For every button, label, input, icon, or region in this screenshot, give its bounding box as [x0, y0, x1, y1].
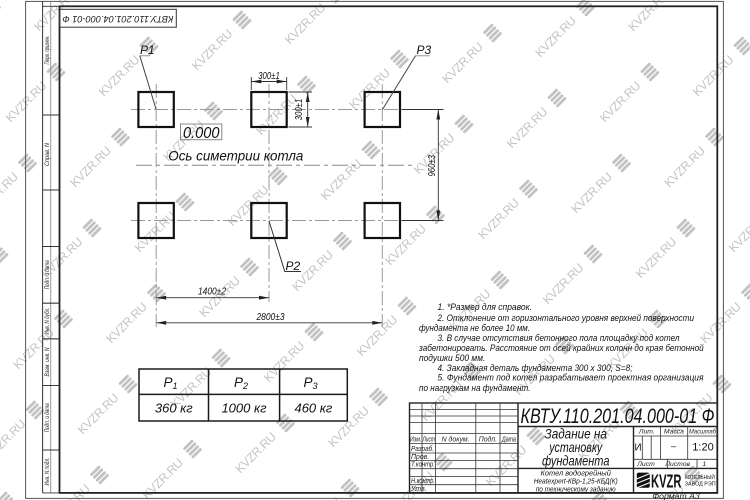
svg-text:Лист: Лист	[422, 437, 435, 444]
svg-text:P3: P3	[417, 43, 432, 57]
svg-text:–: –	[671, 441, 677, 452]
svg-text:Масса: Масса	[664, 429, 684, 436]
svg-text:1. *Размер для справок.: 1. *Размер для справок.	[438, 302, 533, 313]
svg-text:Лист: Лист	[636, 461, 655, 468]
svg-text:0.000: 0.000	[183, 125, 220, 142]
svg-text:Листов: Листов	[664, 461, 690, 468]
svg-text:Т.контр.: Т.контр.	[411, 462, 435, 469]
svg-text:KVZR: KVZR	[651, 471, 682, 492]
svg-text:Ось симетрии котла: Ось симетрии котла	[168, 149, 303, 165]
svg-text:300±1: 300±1	[258, 71, 280, 82]
svg-text:И: И	[634, 442, 641, 453]
svg-text:по техническому заданию: по техническому заданию	[536, 484, 616, 493]
svg-text:960±3: 960±3	[427, 155, 438, 177]
svg-text:P2: P2	[286, 259, 301, 273]
svg-text:1: 1	[702, 461, 706, 468]
svg-text:Утв.: Утв.	[410, 486, 427, 493]
svg-text:1:20: 1:20	[692, 442, 713, 454]
svg-text:300±1: 300±1	[294, 99, 305, 121]
svg-text:по нагрузкам на фундамент.: по нагрузкам на фундамент.	[419, 383, 530, 394]
svg-text:КВТУ.110.201.04.000-01 Ф: КВТУ.110.201.04.000-01 Ф	[62, 13, 173, 24]
svg-text:КОТЕЛЬНЫЙ: КОТЕЛЬНЫЙ	[685, 473, 715, 481]
svg-text:Пров.: Пров.	[411, 454, 429, 461]
svg-text:Н.контр.: Н.контр.	[411, 478, 435, 485]
svg-text:1000 кг: 1000 кг	[221, 401, 267, 416]
svg-text:Перв. примен.: Перв. примен.	[44, 36, 51, 65]
svg-text:2800±3: 2800±3	[256, 312, 285, 323]
svg-text:P1: P1	[140, 43, 155, 57]
svg-text:Дата: Дата	[501, 437, 516, 444]
svg-text:Формат А3: Формат А3	[652, 491, 700, 500]
svg-text:460 кг: 460 кг	[294, 401, 332, 416]
svg-text:1400±2: 1400±2	[198, 287, 226, 298]
svg-text:Изм.: Изм.	[410, 437, 422, 444]
svg-text:Подп. и дата: Подп. и дата	[43, 260, 51, 289]
svg-text:Инв. N подл.: Инв. N подл.	[43, 458, 51, 486]
svg-text:Инв. N дубл.: Инв. N дубл.	[43, 308, 51, 335]
svg-text:Подп.: Подп.	[479, 436, 497, 444]
svg-text:Подп. и дата: Подп. и дата	[43, 403, 51, 432]
svg-text:N докум.: N докум.	[442, 436, 470, 444]
svg-text:Масштаб: Масштаб	[689, 428, 717, 436]
svg-text:фундамента: фундамента	[542, 452, 610, 468]
svg-text:Разраб.: Разраб.	[411, 445, 434, 453]
svg-text:Справ. N: Справ. N	[44, 143, 51, 166]
svg-text:Лит.: Лит.	[638, 429, 655, 436]
svg-text:360 кг: 360 кг	[155, 401, 193, 416]
svg-text:ЗАВОД РЭП: ЗАВОД РЭП	[685, 482, 716, 488]
svg-text:Взам. инв. N: Взам. инв. N	[44, 347, 51, 376]
